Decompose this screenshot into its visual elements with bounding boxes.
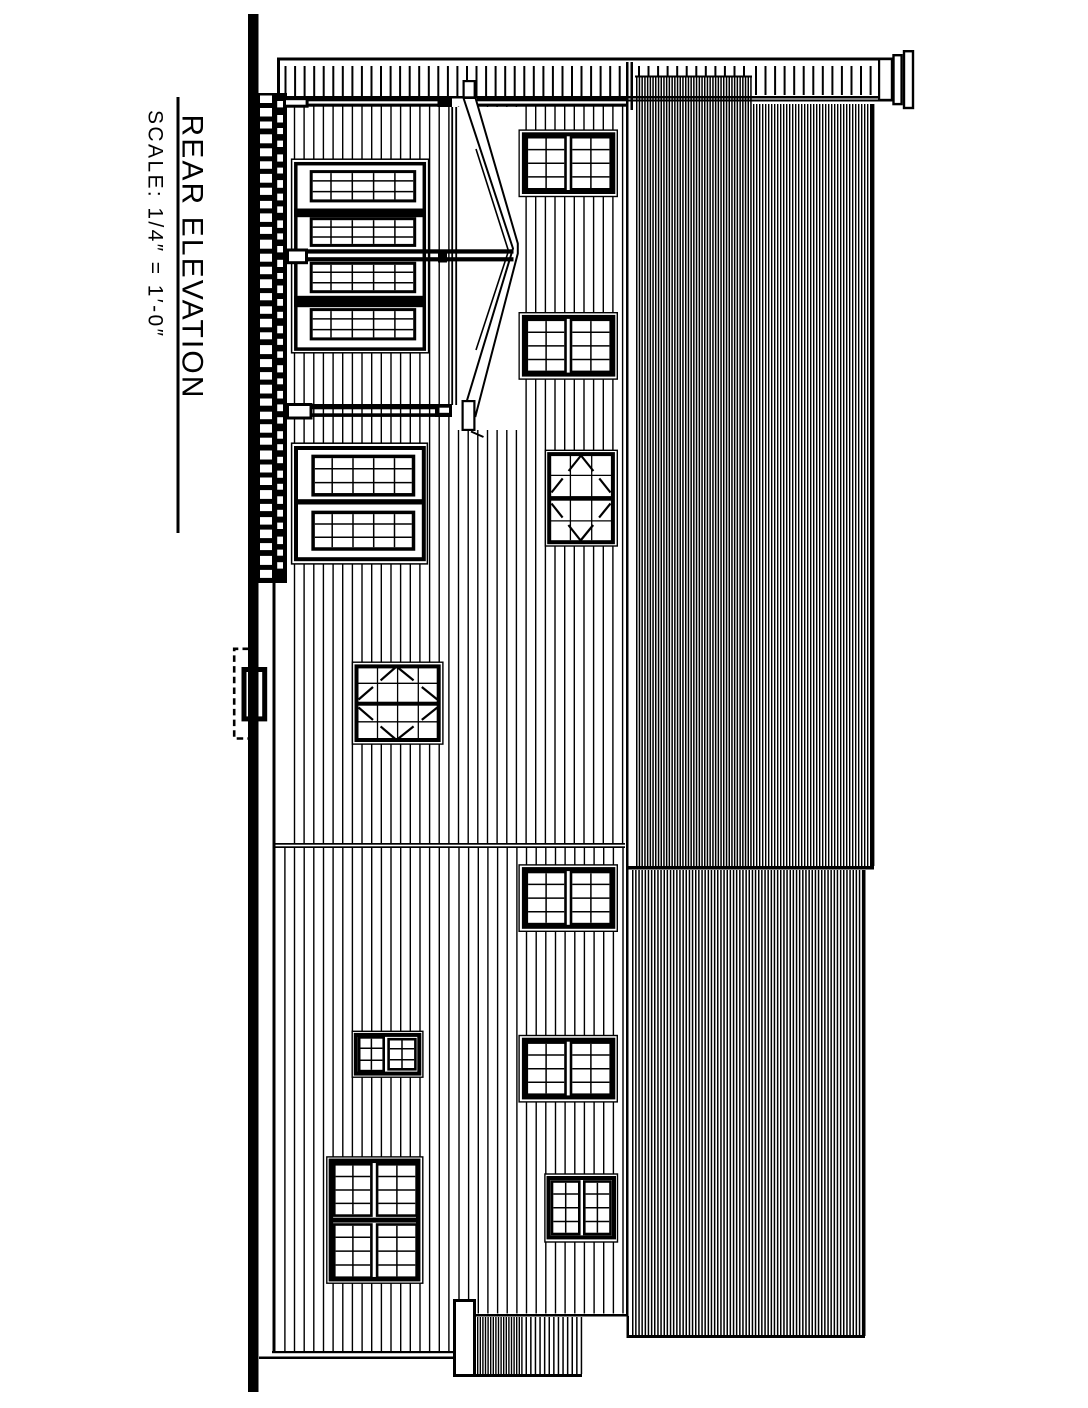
svg-text:SCALE: 1/4″ = 1′-0″: SCALE: 1/4″ = 1′-0″: [144, 110, 167, 338]
svg-text:REAR ELEVATION: REAR ELEVATION: [176, 115, 209, 400]
